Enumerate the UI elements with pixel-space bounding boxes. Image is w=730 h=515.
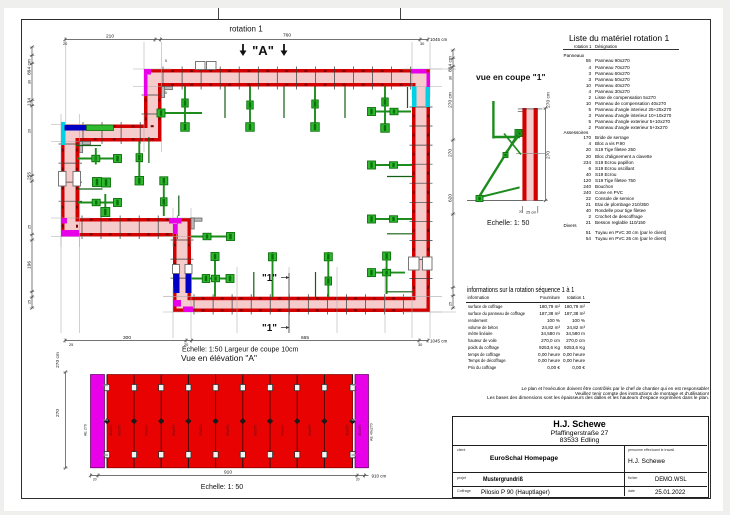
svg-text:894 cm: 894 cm — [27, 59, 33, 75]
svg-text:20: 20 — [356, 478, 360, 482]
svg-text:AE 270: AE 270 — [84, 424, 88, 436]
svg-text:90x270: 90x270 — [308, 424, 312, 435]
svg-text:20: 20 — [519, 210, 523, 214]
svg-text:910 cm: 910 cm — [372, 474, 387, 479]
svg-text:40x270: 40x270 — [358, 424, 362, 435]
svg-text:270 cm: 270 cm — [546, 92, 552, 108]
svg-text:760: 760 — [283, 33, 291, 39]
svg-text:20: 20 — [93, 478, 97, 482]
svg-text:270: 270 — [546, 151, 552, 159]
svg-text:25: 25 — [448, 302, 453, 306]
svg-text:665: 665 — [301, 335, 309, 341]
svg-text:30: 30 — [418, 342, 423, 347]
svg-text:"A": "A" — [252, 43, 274, 58]
svg-text:300: 300 — [123, 335, 131, 341]
svg-text:5: 5 — [165, 91, 167, 95]
svg-text:25: 25 — [69, 342, 73, 347]
svg-text:vue en coupe "1": vue en coupe "1" — [476, 72, 545, 82]
svg-text:90x270: 90x270 — [117, 424, 121, 435]
svg-text:20: 20 — [63, 41, 68, 46]
svg-text:30: 30 — [448, 75, 453, 80]
svg-text:"1": "1" — [262, 323, 277, 334]
svg-text:90x270: 90x270 — [281, 424, 285, 435]
svg-text:90x270: 90x270 — [145, 424, 149, 435]
svg-text:"1": "1" — [262, 273, 277, 284]
svg-text:Vue en élévation "A": Vue en élévation "A" — [181, 353, 257, 363]
svg-text:1045 cm: 1045 cm — [430, 339, 448, 344]
svg-text:90x270: 90x270 — [199, 424, 203, 435]
svg-text:90x270: 90x270 — [253, 424, 257, 435]
svg-text:25 cm: 25 cm — [526, 211, 536, 215]
svg-text:Echelle: 1: 50: Echelle: 1: 50 — [201, 484, 244, 491]
svg-text:30: 30 — [27, 79, 32, 84]
svg-text:40x270: 40x270 — [346, 424, 350, 435]
svg-text:270: 270 — [55, 409, 61, 417]
svg-text:196: 196 — [27, 261, 33, 269]
svg-text:Echelle: 1: 50: Echelle: 1: 50 — [487, 220, 530, 227]
svg-text:210: 210 — [106, 34, 114, 40]
svg-text:1045 cm: 1045 cm — [430, 37, 448, 42]
svg-text:rotation 1: rotation 1 — [229, 25, 263, 34]
svg-text:25: 25 — [27, 300, 32, 304]
svg-text:25: 25 — [27, 225, 32, 229]
svg-text:270 cm: 270 cm — [448, 92, 454, 108]
svg-text:910: 910 — [224, 470, 232, 476]
svg-text:270 cm: 270 cm — [55, 352, 61, 368]
svg-text:255: 255 — [27, 172, 33, 180]
svg-text:270: 270 — [448, 149, 454, 157]
svg-text:620: 620 — [448, 194, 454, 202]
svg-text:90x270: 90x270 — [172, 424, 176, 435]
svg-text:AE 40x270: AE 40x270 — [370, 423, 374, 441]
svg-text:134: 134 — [27, 98, 33, 106]
svg-text:90x270: 90x270 — [226, 424, 230, 435]
svg-text:30: 30 — [420, 41, 425, 46]
svg-text:5: 5 — [165, 59, 167, 63]
svg-text:894 cm: 894 cm — [448, 56, 454, 72]
svg-text:20: 20 — [27, 128, 32, 133]
svg-text:40x270: 40x270 — [109, 424, 113, 435]
